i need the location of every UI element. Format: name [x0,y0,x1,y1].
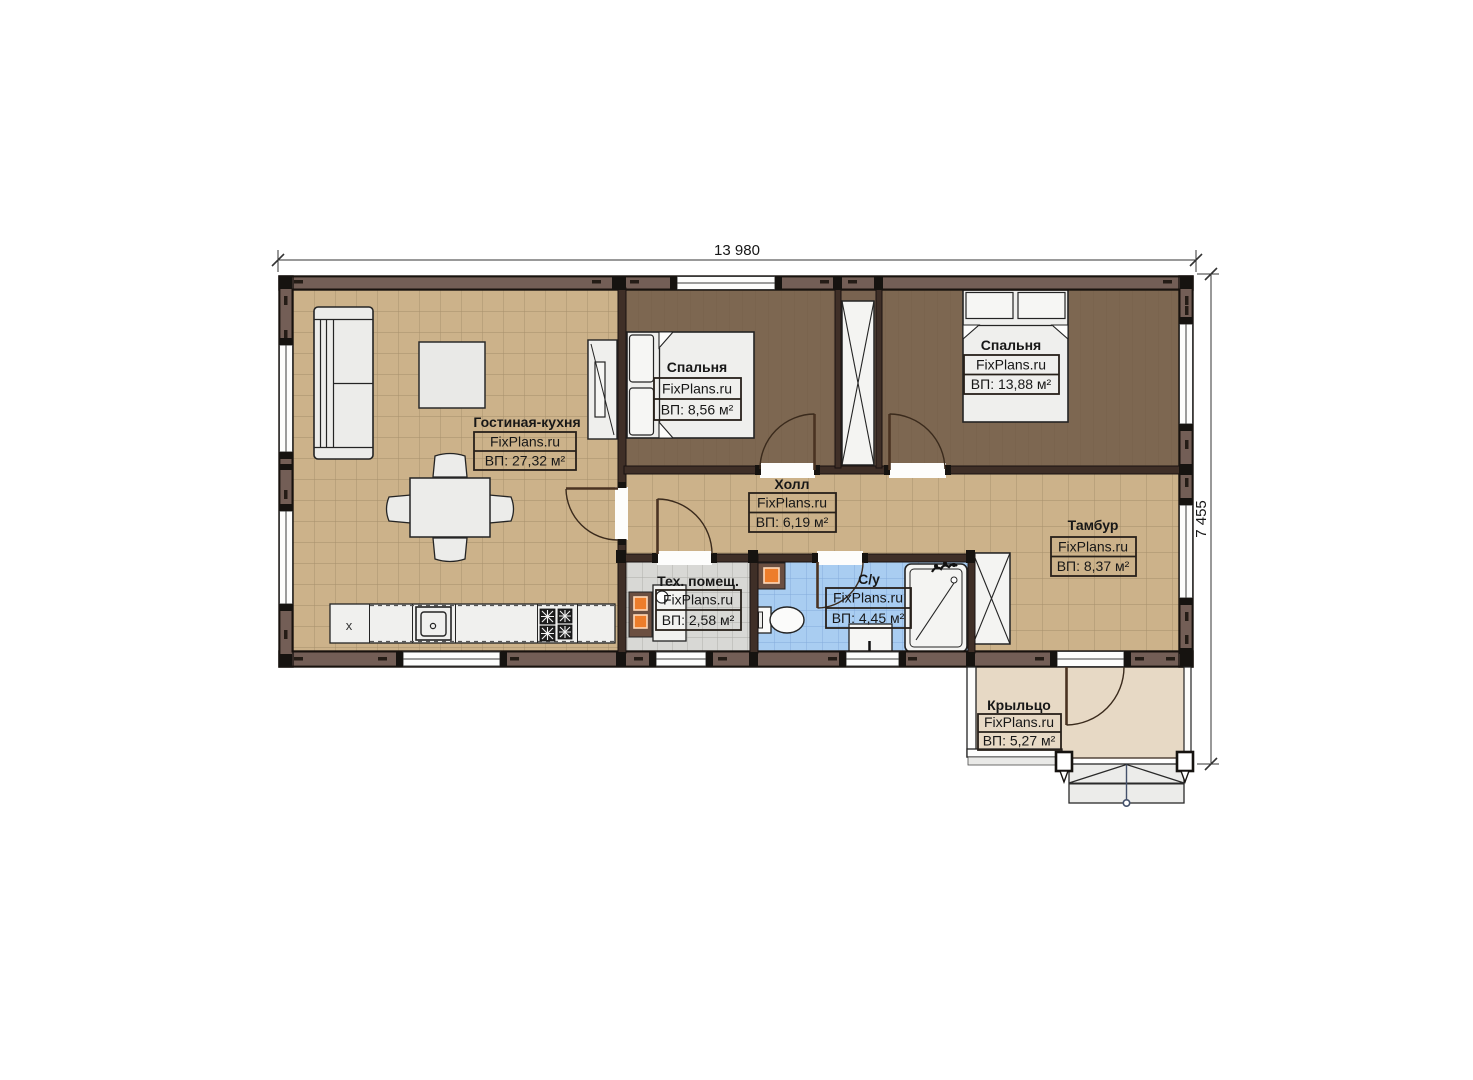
svg-text:FixPlans.ru: FixPlans.ru [757,495,827,511]
svg-text:FixPlans.ru: FixPlans.ru [976,357,1046,373]
svg-text:FixPlans.ru: FixPlans.ru [1058,539,1128,555]
svg-text:Тамбур: Тамбур [1068,517,1119,533]
svg-text:ВП: 2,58 м²: ВП: 2,58 м² [662,612,735,628]
svg-text:Спальня: Спальня [981,337,1041,353]
svg-text:ВП: 5,27 м²: ВП: 5,27 м² [983,733,1056,749]
svg-text:ВП: 8,37 м²: ВП: 8,37 м² [1057,558,1130,574]
svg-text:Гостиная-кухня: Гостиная-кухня [473,414,580,430]
svg-text:ВП: 13,88 м²: ВП: 13,88 м² [971,376,1052,392]
svg-text:13 980: 13 980 [714,242,760,259]
svg-text:ВП: 4,45 м²: ВП: 4,45 м² [832,610,905,626]
svg-text:ВП: 6,19 м²: ВП: 6,19 м² [756,514,829,530]
svg-text:7 455: 7 455 [1193,500,1210,538]
svg-text:ВП: 8,56 м²: ВП: 8,56 м² [661,402,734,418]
svg-text:Холл: Холл [774,476,809,492]
svg-text:x: x [346,618,353,633]
svg-text:Спальня: Спальня [667,359,727,375]
svg-text:FixPlans.ru: FixPlans.ru [663,592,733,608]
svg-text:ВП: 27,32 м²: ВП: 27,32 м² [485,453,566,469]
svg-text:Тех. помещ.: Тех. помещ. [657,573,739,589]
svg-text:Крыльцо: Крыльцо [987,697,1051,713]
svg-text:FixPlans.ru: FixPlans.ru [833,590,903,606]
svg-text:FixPlans.ru: FixPlans.ru [984,714,1054,730]
svg-text:FixPlans.ru: FixPlans.ru [662,381,732,397]
svg-text:FixPlans.ru: FixPlans.ru [490,434,560,450]
svg-text:С/у: С/у [858,571,880,587]
